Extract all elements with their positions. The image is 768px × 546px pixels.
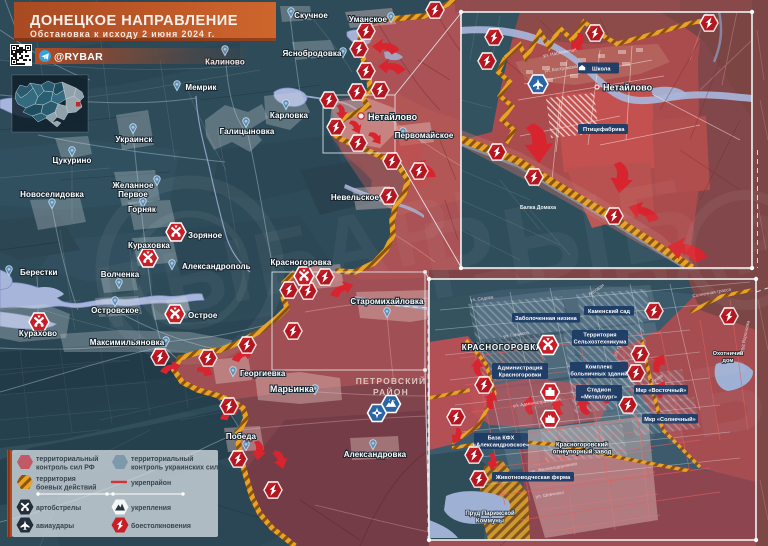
svg-text:Уманское: Уманское [349, 15, 388, 24]
svg-text:Галицыновка: Галицыновка [220, 127, 275, 136]
svg-text:артобстрелы: артобстрелы [36, 504, 81, 512]
svg-text:Первомайское: Первомайское [395, 131, 454, 140]
svg-text:Максимильяновка: Максимильяновка [90, 338, 165, 347]
svg-text:Победа: Победа [226, 432, 257, 441]
svg-text:Кураховка: Кураховка [128, 241, 170, 250]
svg-text:Первое: Первое [118, 190, 148, 199]
svg-text:Заболоченная низина: Заболоченная низина [515, 315, 577, 322]
svg-text:База КФХ: База КФХ [488, 436, 515, 442]
svg-text:Волченка: Волченка [101, 270, 140, 279]
svg-text:Скучное: Скучное [294, 11, 328, 20]
svg-text:контроль украинских сил: контроль украинских сил [131, 465, 218, 472]
svg-text:Острое: Острое [188, 311, 218, 320]
svg-text:Зоряное: Зоряное [188, 231, 223, 240]
svg-text:Сельхозтехникума: Сельхозтехникума [574, 340, 628, 346]
svg-text:территориальный: территориальный [131, 455, 194, 463]
svg-text:ДОНЕЦКОЕ НАПРАВЛЕНИЕ: ДОНЕЦКОЕ НАПРАВЛЕНИЕ [30, 13, 238, 29]
svg-text:@RYBAR: @RYBAR [54, 51, 103, 63]
svg-text:Цукурино: Цукурино [53, 156, 92, 165]
svg-text:Яснобродовка: Яснобродовка [282, 49, 342, 58]
svg-text:ПЕТРОВСКИЙ: ПЕТРОВСКИЙ [356, 375, 427, 386]
svg-text:Нетайлово: Нетайлово [603, 83, 653, 93]
svg-text:Александровка: Александровка [344, 450, 407, 459]
svg-text:Александрополь: Александрополь [182, 262, 251, 271]
svg-text:Старомихайловка: Старомихайловка [350, 297, 424, 306]
svg-text:Горняк: Горняк [128, 205, 157, 214]
svg-text:Коммуны: Коммуны [476, 519, 504, 525]
svg-text:авиаудары: авиаудары [36, 523, 74, 530]
svg-text:Невельское: Невельское [331, 193, 380, 202]
svg-text:Мемрик: Мемрик [185, 83, 217, 92]
svg-text:КРАСНОГОРОВКА: КРАСНОГОРОВКА [462, 343, 543, 352]
svg-text:Карловка: Карловка [270, 111, 309, 120]
svg-text:Марьинка: Марьинка [270, 384, 314, 394]
svg-text:контроль сил РФ: контроль сил РФ [36, 465, 95, 472]
svg-text:Администрация: Администрация [497, 366, 542, 372]
svg-text:территория: территория [36, 476, 76, 483]
svg-text:РАЙОН: РАЙОН [373, 386, 409, 397]
svg-text:боевых действий: боевых действий [36, 484, 97, 492]
svg-text:Берестки: Берестки [20, 268, 58, 277]
svg-text:Территория: Территория [583, 333, 616, 339]
svg-text:Георгиевка: Георгиевка [240, 369, 286, 378]
svg-text:Школа: Школа [592, 67, 611, 73]
svg-text:укрепления: укрепления [131, 505, 171, 512]
svg-text:Птицефабрика: Птицефабрика [583, 126, 625, 133]
svg-text:Курахово: Курахово [19, 329, 57, 338]
svg-text:боестолкновения: боестолкновения [131, 522, 191, 530]
svg-text:Пруд Парижской: Пруд Парижской [465, 510, 515, 517]
svg-text:территориальный: территориальный [36, 455, 99, 463]
svg-text:Красногоровка: Красногоровка [271, 258, 332, 267]
svg-text:укрепрайон: укрепрайон [131, 479, 171, 487]
svg-text:Островское: Островское [91, 306, 139, 315]
svg-text:Желанное: Желанное [111, 181, 153, 190]
svg-text:Украинск: Украинск [115, 135, 153, 144]
svg-text:Обстановка к исходу 2 июня 202: Обстановка к исходу 2 июня 2024 г. [30, 29, 215, 39]
svg-text:Каменский сад: Каменский сад [588, 308, 630, 315]
svg-text:Новоселидовка: Новоселидовка [20, 190, 84, 199]
svg-text:Нетайлово: Нетайлово [368, 112, 418, 122]
